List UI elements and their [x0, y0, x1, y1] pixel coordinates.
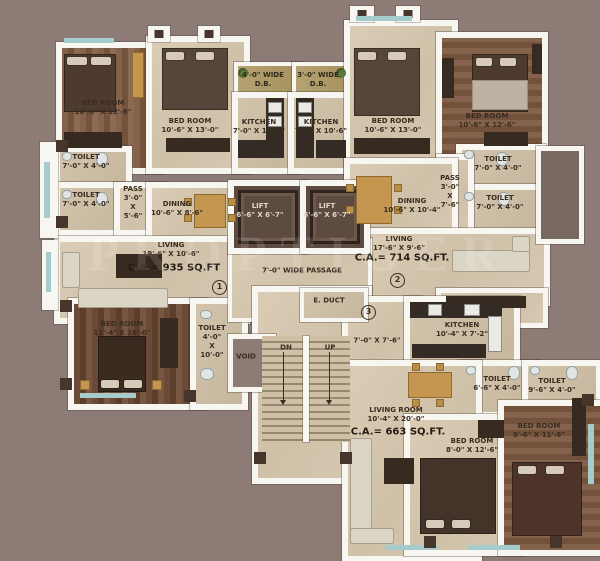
wash-basin: [530, 366, 540, 375]
room-label: TOILET7'-0" X 4'-0": [62, 191, 109, 209]
pillow: [91, 57, 111, 65]
kitchen-counter: [316, 140, 346, 158]
pillow: [476, 58, 492, 66]
window-top2: [356, 16, 412, 21]
floor-plan: BED ROOM10'-6" X 12'-6" BED ROOM10'-6" X…: [0, 0, 600, 561]
e-duct-label: E. DUCT: [313, 296, 344, 305]
lift-label: LIFT6'-6" X 6'-7": [303, 202, 350, 220]
column-icon: [205, 30, 214, 38]
room-label: BED ROOM10'-6" X 13'-0": [162, 117, 219, 135]
flat1-marker: 1: [212, 280, 227, 295]
wall-stub: [198, 26, 220, 42]
column: [254, 452, 266, 464]
flat2-duct-recess: [536, 146, 584, 244]
column: [340, 452, 352, 464]
dry-balcony-label: 3'-0" WIDED.B.: [297, 71, 339, 89]
bed-blanket: [472, 80, 528, 110]
stair-arrowhead-up: [326, 400, 332, 405]
column: [582, 394, 594, 406]
wash-basin: [464, 192, 474, 201]
column: [56, 216, 68, 228]
wall-stub: [148, 26, 170, 42]
room-label: DINING10'-6" X 8'-6": [151, 200, 203, 218]
dining-table: [408, 372, 452, 398]
room-label: TOILET7'-0" X 4'-0": [476, 194, 523, 212]
room-label: BED ROOM10'-6" X 12'-6": [459, 112, 516, 130]
flat3-marker: 3: [361, 305, 376, 320]
chair: [436, 399, 444, 407]
chair: [394, 184, 402, 192]
room-label: TOILET9'-6" X 4'-0": [528, 377, 575, 395]
side-table: [152, 380, 162, 390]
column: [424, 536, 436, 548]
pillow: [500, 58, 516, 66]
column: [60, 378, 72, 390]
stove: [464, 304, 480, 316]
dresser: [354, 138, 430, 154]
window-dark-right: [532, 44, 542, 74]
lift-label: LIFT6'-6" X 6'-7": [236, 202, 283, 220]
dresser: [64, 132, 122, 148]
room-label: TOILET4'-0" X 10'-0": [198, 324, 225, 360]
room-label: LIVING ROOM10'-4" X 20'-0": [368, 406, 425, 424]
wash-basin: [466, 366, 476, 375]
stairs-dn-label: DN: [280, 343, 292, 352]
pillow: [388, 52, 406, 60]
sofa: [78, 288, 168, 308]
pillow: [67, 57, 87, 65]
room-label: KITCHEN7'-0" X 10'-6": [295, 118, 347, 136]
room-label: BED ROOM10'-6" X 13'-0": [365, 117, 422, 135]
pillow: [452, 520, 470, 528]
room-label: KITCHEN10'-4" X 7'-2": [436, 321, 488, 339]
stair-arrow-dn: [283, 352, 284, 400]
room-label: BED ROOM9'-6" X 11'-6": [513, 422, 565, 440]
chair: [436, 363, 444, 371]
room-label: BED ROOM11'-4" X 16'-0": [94, 320, 151, 338]
room-label: TOILET7'-0" X 4'-0": [474, 155, 521, 173]
side-table: [80, 380, 90, 390]
room-label: 7'-0" X 7'-6": [353, 336, 400, 345]
room-label: KITCHEN7'-0" X 10'-6": [233, 118, 285, 136]
carpet-area-label: C.A.= 714 SQ.FT.: [355, 253, 450, 264]
carpet-area-label: C.A.= 935 SQ.FT: [128, 263, 220, 274]
stove: [298, 102, 312, 113]
room-label: BED ROOM10'-6" X 12'-6": [75, 99, 132, 117]
passage-label: 7'-0" WIDE PASSAGE: [262, 266, 342, 275]
column: [60, 300, 72, 312]
stair-arrow-up: [329, 352, 330, 400]
stairs-up-label: UP: [325, 343, 336, 352]
window-right: [588, 424, 594, 484]
room-label: PASS3'-0" X 5'-6": [123, 185, 143, 221]
dry-balcony-label: 4'-0" WIDED.B.: [242, 71, 284, 89]
flat2-marker: 2: [390, 273, 405, 288]
column-icon: [155, 30, 164, 38]
window-left2: [46, 252, 51, 292]
coffee-table: [384, 458, 414, 484]
kitchen-counter: [412, 344, 486, 358]
pillow: [124, 380, 142, 388]
sofa: [350, 528, 394, 544]
chair: [346, 184, 354, 192]
wardrobe: [160, 318, 178, 368]
window-bottom-left: [80, 393, 136, 398]
pillow: [196, 52, 214, 60]
stair-arrowhead-dn: [280, 400, 286, 405]
carpet-area-label: C.A.= 663 SQ.FT.: [351, 427, 446, 438]
void-label: VOID: [236, 352, 256, 361]
pillow: [358, 52, 376, 60]
wardrobe: [572, 398, 586, 456]
sofa: [452, 250, 530, 272]
pillow: [518, 466, 536, 474]
sink: [428, 304, 442, 316]
wardrobe: [478, 420, 504, 438]
room-label: LIVING19'-6" X 10'-6": [143, 241, 200, 259]
pillow: [546, 466, 564, 474]
pillow: [426, 520, 444, 528]
sofa-chaise: [512, 236, 530, 252]
room-label: PASS3'-0" X 7'-6": [440, 174, 460, 210]
window-top1: [64, 38, 114, 43]
column: [550, 536, 562, 548]
wc-fixture: [200, 368, 214, 380]
chair: [412, 363, 420, 371]
room-label: DINING10'-6" X 10'-4": [384, 197, 441, 215]
wardrobe: [442, 58, 454, 98]
sofa: [350, 438, 372, 530]
wash-basin: [464, 150, 474, 159]
pillow: [166, 52, 184, 60]
refrigerator: [488, 316, 502, 352]
wardrobe: [132, 52, 144, 98]
column: [56, 140, 68, 152]
kitchen-counter: [238, 140, 268, 158]
room-label: TOILET6'-6" X 4'-0": [473, 375, 520, 393]
window-bottom2: [468, 545, 520, 550]
chair: [228, 198, 236, 206]
room-label: LIVING17'-6" X 9'-6": [373, 235, 425, 253]
sofa-chaise: [62, 252, 80, 288]
room-label: BED ROOM8'-0" X 12'-6": [446, 437, 498, 455]
stair-divider-wall: [303, 336, 309, 442]
stove: [268, 102, 282, 113]
dresser: [484, 132, 528, 146]
window-left: [44, 162, 50, 218]
wash-basin: [200, 310, 212, 319]
chair: [228, 214, 236, 222]
dresser: [166, 138, 230, 152]
room-label: TOILET7'-0" X 4'-0": [62, 153, 109, 171]
column: [184, 390, 196, 402]
pillow: [101, 380, 119, 388]
